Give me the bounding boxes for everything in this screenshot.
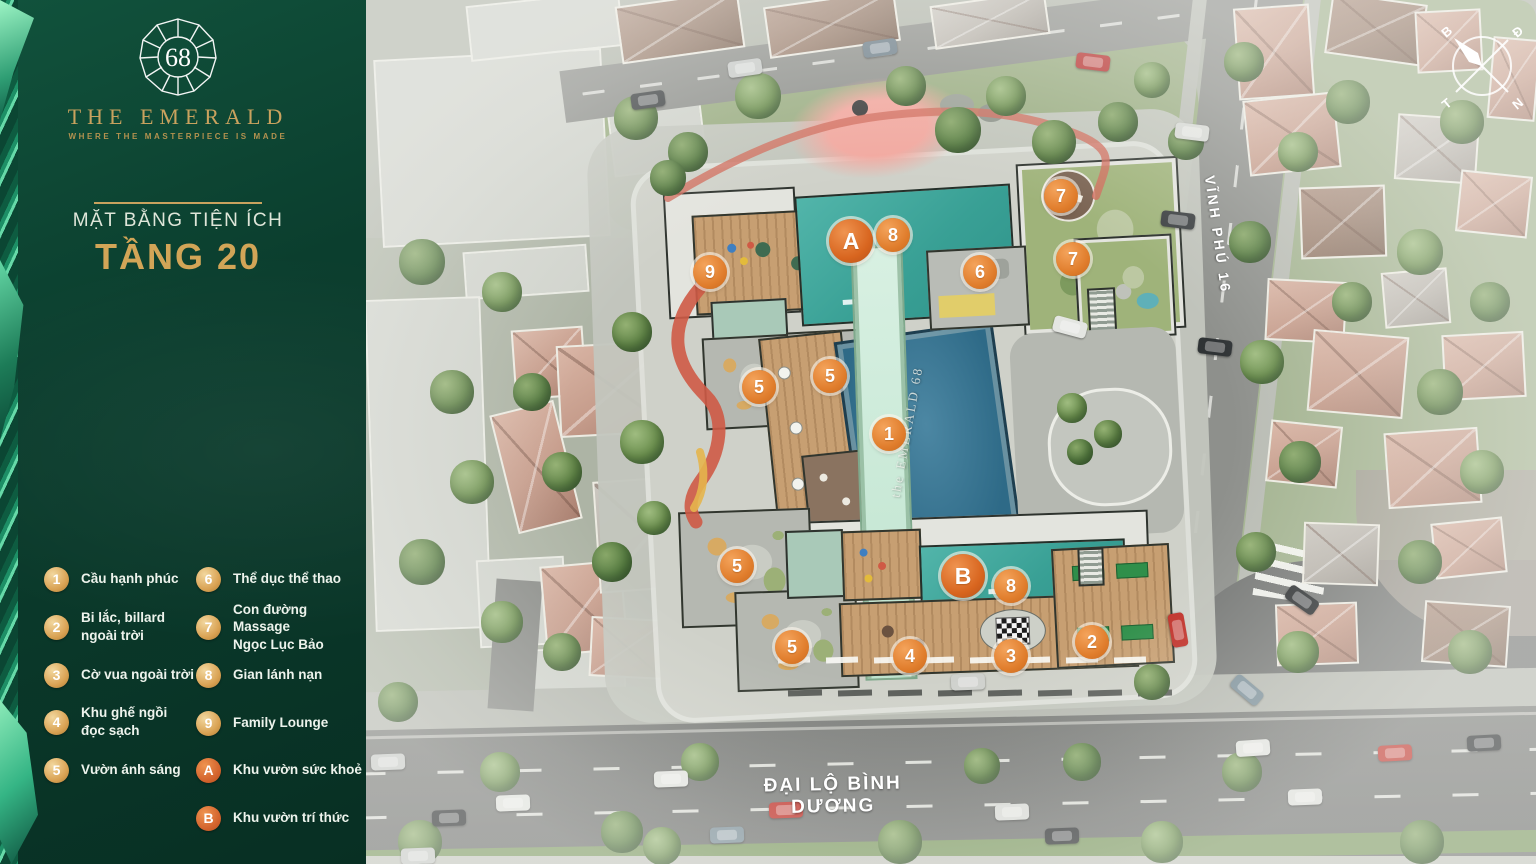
- map-marker-7: 7: [1044, 179, 1078, 213]
- car-roof: [735, 62, 755, 74]
- car-roof: [1060, 320, 1081, 334]
- car-roof: [958, 677, 977, 687]
- parking-dash: [1088, 690, 1122, 697]
- tree: [878, 820, 922, 864]
- tree: [1134, 664, 1170, 700]
- tree: [1063, 743, 1101, 781]
- tree: [399, 539, 445, 585]
- car-roof: [1002, 807, 1021, 817]
- stairwell: [1077, 548, 1104, 587]
- legend-label-8: Gian lánh nạn: [233, 666, 322, 684]
- tree: [542, 452, 582, 492]
- brand-name: THE EMERALD: [6, 104, 350, 130]
- play-equipment: [859, 548, 867, 556]
- legend-label-4: Khu ghế ngồi đọc sạch: [81, 704, 167, 739]
- map-marker-2: 2: [1075, 625, 1109, 659]
- tree: [1141, 821, 1183, 863]
- deck-edge-mark: [826, 656, 858, 663]
- tree: [1134, 62, 1170, 98]
- car-roof: [717, 830, 736, 840]
- car-roof: [503, 798, 522, 808]
- play-equipment: [747, 242, 754, 249]
- house-roof: [1309, 331, 1407, 417]
- car: [401, 847, 436, 864]
- billiard-table: [1121, 624, 1154, 641]
- tree: [1470, 282, 1510, 322]
- legend-badge-B: B: [196, 806, 221, 831]
- stairwell: [1087, 287, 1117, 332]
- legend-item-8: 8Gian lánh nạn: [196, 655, 364, 695]
- legend-item-7: 7Con đường Massage Ngọc Lục Bảo: [196, 607, 364, 647]
- car-roof: [1172, 620, 1185, 640]
- car-roof: [1295, 792, 1314, 802]
- tree: [480, 752, 520, 792]
- car: [1378, 744, 1413, 762]
- parking-dash: [888, 690, 922, 697]
- legend-item-4: 4Khu ghế ngồi đọc sạch: [44, 702, 212, 742]
- tree: [1236, 532, 1276, 572]
- map-marker-6: 6: [963, 255, 997, 289]
- tree: [1277, 631, 1319, 673]
- legend-label-1: Cầu hạnh phúc: [81, 570, 179, 588]
- parking-dash: [1038, 690, 1072, 697]
- tree: [1397, 229, 1443, 275]
- tree: [735, 73, 781, 119]
- car-roof: [1474, 738, 1494, 749]
- compass: B Đ T N: [1434, 18, 1530, 114]
- tree: [601, 811, 643, 853]
- side-lane: [488, 579, 543, 712]
- tree: [1224, 42, 1264, 82]
- car-roof: [1083, 56, 1103, 68]
- logo-number: 68: [165, 43, 191, 72]
- legend-label-6: Thể dục thể thao: [233, 570, 341, 588]
- compass-needle: [1454, 38, 1482, 66]
- legend-badge-9: 9: [196, 711, 221, 736]
- tree: [1400, 820, 1444, 864]
- table: [882, 625, 894, 637]
- car-roof: [1052, 831, 1071, 841]
- umbrella: [777, 366, 791, 380]
- car-roof: [378, 757, 397, 767]
- tree: [1326, 80, 1370, 124]
- tree: [1229, 221, 1271, 263]
- tree: [986, 76, 1026, 116]
- compass-letter-east: Đ: [1509, 23, 1526, 41]
- diamond-logo-icon: 68: [118, 16, 238, 100]
- play-equipment: [740, 257, 748, 265]
- map-marker-9: 9: [693, 255, 727, 289]
- tree: [592, 542, 632, 582]
- legend-label-B: Khu vườn trí thức: [233, 809, 349, 827]
- car: [951, 673, 986, 690]
- legend-label-5: Vườn ánh sáng: [81, 761, 181, 779]
- tree: [1240, 340, 1284, 384]
- building-pad: [468, 0, 623, 60]
- kids-corner: [841, 529, 923, 602]
- tree: [1094, 420, 1122, 448]
- tree: [1448, 630, 1492, 674]
- map-marker-5: 5: [742, 370, 776, 404]
- play-equipment: [864, 574, 872, 582]
- legend-badge-3: 3: [44, 663, 69, 688]
- legend-item-1: 1Cầu hạnh phúc: [44, 559, 212, 599]
- roof-terrace: [785, 529, 845, 599]
- legend-item-6: 6Thể dục thể thao: [196, 559, 364, 599]
- lane-dashes: [360, 748, 1536, 776]
- house-roof: [1457, 172, 1531, 237]
- tree: [1278, 132, 1318, 172]
- tree: [964, 748, 1000, 784]
- tree: [450, 460, 494, 504]
- car-roof: [661, 774, 680, 784]
- map-marker-A: A: [829, 219, 873, 263]
- house-roof: [1432, 519, 1505, 578]
- map-marker-5: 5: [813, 359, 847, 393]
- tree: [399, 239, 445, 285]
- parking-dash: [988, 690, 1022, 697]
- legend-item-2: 2Bi lắc, billard ngoài trời: [44, 607, 212, 647]
- car: [371, 753, 406, 770]
- car-roof: [870, 42, 890, 54]
- parking-dash: [788, 690, 822, 697]
- house-roof: [1304, 524, 1378, 584]
- car: [1045, 827, 1080, 844]
- map-marker-1: 1: [872, 417, 906, 451]
- car: [1235, 739, 1270, 757]
- car: [995, 803, 1030, 820]
- car-roof: [1168, 214, 1188, 226]
- car: [710, 826, 745, 843]
- legend-badge-6: 6: [196, 567, 221, 592]
- legend-item-5: 5Vườn ánh sáng: [44, 750, 212, 790]
- map-marker-5: 5: [720, 549, 754, 583]
- car: [496, 794, 531, 811]
- tree: [620, 420, 664, 464]
- legend-label-3: Cờ vua ngoài trời: [81, 666, 194, 684]
- gold-divider: [94, 202, 262, 204]
- legend-label-9: Family Lounge: [233, 714, 328, 732]
- logo: 68: [6, 16, 350, 105]
- legend-label-A: Khu vườn sức khoẻ: [233, 761, 362, 779]
- car-roof: [638, 94, 658, 106]
- car: [1467, 734, 1502, 752]
- map-marker-B: B: [941, 554, 985, 598]
- table: [755, 242, 771, 258]
- legend-item-A: AKhu vườn sức khoẻ: [196, 750, 364, 790]
- tree: [482, 272, 522, 312]
- tree: [378, 682, 418, 722]
- compass-letter-south: N: [1509, 95, 1526, 113]
- tree: [1222, 752, 1262, 792]
- legend-badge-7: 7: [196, 615, 221, 640]
- map-marker-8: 8: [994, 569, 1028, 603]
- car: [1288, 788, 1323, 805]
- map-marker-7: 7: [1056, 242, 1090, 276]
- deck-edge-mark: [1114, 656, 1146, 663]
- tree: [481, 601, 523, 643]
- plan-title: TẦNG 20: [6, 236, 350, 278]
- legend-badge-5: 5: [44, 758, 69, 783]
- legend-label-7: Con đường Massage Ngọc Lục Bảo: [233, 601, 364, 654]
- parking-dash: [938, 690, 972, 697]
- legend-badge-A: A: [196, 758, 221, 783]
- plan-heading: MẶT BẰNG TIỆN ÍCH TẦNG 20: [6, 202, 350, 278]
- lane-dashes: [361, 792, 1536, 820]
- car: [654, 770, 689, 787]
- billiard-deck: [1051, 543, 1175, 669]
- legend-label-2: Bi lắc, billard ngoài trời: [81, 609, 165, 644]
- map-marker-3: 3: [994, 639, 1028, 673]
- tree: [543, 633, 581, 671]
- tree: [1460, 450, 1504, 494]
- tree: [1032, 120, 1076, 164]
- road-label-dai-lo-binh-duong: ĐẠI LỘ BÌNH DƯƠNG: [728, 772, 939, 820]
- play-equipment: [727, 243, 736, 252]
- tree: [886, 66, 926, 106]
- masterplan-poster: the EMERALD 68 VĨNH PHÚ 16 ĐẠI LỘ BÌNH D…: [0, 0, 1536, 864]
- tree: [650, 160, 686, 196]
- tree: [1279, 441, 1321, 483]
- table: [819, 473, 828, 482]
- legend-item-9: 9Family Lounge: [196, 703, 364, 743]
- info-sidebar: 68 THE EMERALD WHERE THE MASTERPIECE IS …: [0, 0, 366, 864]
- house-roof: [1301, 187, 1385, 258]
- tree: [1398, 540, 1442, 584]
- tree: [637, 501, 671, 535]
- umbrella: [789, 421, 803, 435]
- compass-letter-west: T: [1439, 95, 1455, 112]
- legend-item-B: BKhu vườn trí thức: [196, 798, 364, 838]
- legend-badge-1: 1: [44, 567, 69, 592]
- tree: [935, 107, 981, 153]
- brand-tagline: WHERE THE MASTERPIECE IS MADE: [6, 132, 350, 141]
- parking-dash: [838, 690, 872, 697]
- legend-badge-2: 2: [44, 615, 69, 640]
- tree: [612, 312, 652, 352]
- car-roof: [1385, 748, 1405, 759]
- car: [432, 809, 467, 826]
- car-roof: [1205, 341, 1225, 353]
- tree: [1332, 282, 1372, 322]
- tree: [643, 827, 681, 864]
- tree: [1067, 439, 1093, 465]
- house-roof: [1383, 269, 1449, 326]
- plan-subtitle: MẶT BẰNG TIỆN ÍCH: [6, 210, 350, 232]
- billiard-table: [1116, 562, 1149, 579]
- play-structure: [852, 100, 868, 116]
- legend-badge-8: 8: [196, 663, 221, 688]
- tree: [1098, 102, 1138, 142]
- legend-badge-4: 4: [44, 710, 69, 735]
- car-roof: [408, 851, 427, 861]
- table: [842, 497, 851, 506]
- compass-letter-north: B: [1438, 23, 1455, 41]
- tree: [430, 370, 474, 414]
- map-marker-5: 5: [775, 630, 809, 664]
- play-equipment: [878, 562, 886, 570]
- map-marker-4: 4: [893, 639, 927, 673]
- car-roof: [1243, 743, 1263, 754]
- legend-item-3: 3Cờ vua ngoài trời: [44, 655, 212, 695]
- bottom-path: [350, 856, 1536, 864]
- car-roof: [1182, 126, 1202, 138]
- tree: [1417, 369, 1463, 415]
- crystal-shard: [0, 700, 38, 864]
- sport-mat: [938, 293, 995, 318]
- tree: [513, 373, 551, 411]
- map-marker-8: 8: [876, 218, 910, 252]
- car-roof: [439, 813, 458, 823]
- tree: [1057, 393, 1087, 423]
